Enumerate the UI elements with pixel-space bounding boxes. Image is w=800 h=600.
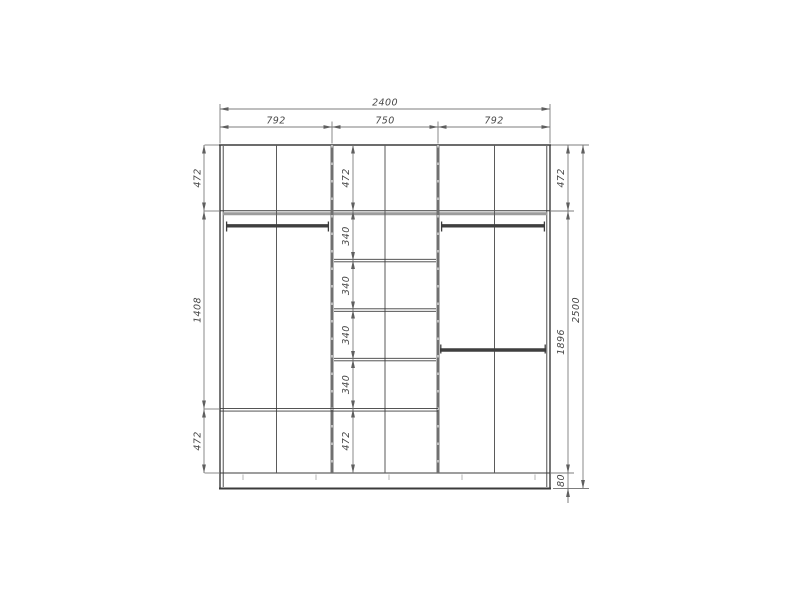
wardrobe-dimension-drawing: 2400 792 750 792 472 1408 472 472 340 34… [0,0,800,600]
dimension-labels: 2400 792 750 792 472 1408 472 472 340 34… [193,98,583,487]
dim-label-center-4: 340 [341,325,352,344]
right-module-shelf [440,345,546,354]
dimension-lines [204,104,589,503]
dim-label-section-2: 750 [375,116,394,127]
hanging-rail-left [226,222,329,232]
dim-label-center-1: 472 [341,168,352,187]
dim-label-total-width: 2400 [372,98,398,109]
hanging-rail-right [441,222,545,232]
dim-label-section-3: 792 [484,116,503,127]
extension-lines [205,104,590,489]
plinth-support-marks [243,475,535,481]
dim-label-section-1: 792 [266,116,285,127]
dim-label-left-bottom: 472 [193,431,204,450]
dim-label-total-height: 2500 [571,297,582,323]
dim-label-center-2: 340 [341,226,352,245]
dim-label-center-3: 340 [341,276,352,295]
dim-label-plinth: 80 [556,474,567,487]
cabinet-structure [219,145,551,489]
dim-label-right-top: 472 [556,168,567,187]
dim-label-center-5: 340 [341,375,352,394]
dim-label-center-6: 472 [341,431,352,450]
dim-label-right-mid: 1896 [556,329,567,355]
dim-label-left-mid: 1408 [193,297,204,323]
drawing-page: 2400 792 750 792 472 1408 472 472 340 34… [0,0,800,600]
dim-label-left-top: 472 [193,168,204,187]
bottom-shelf [220,409,438,412]
